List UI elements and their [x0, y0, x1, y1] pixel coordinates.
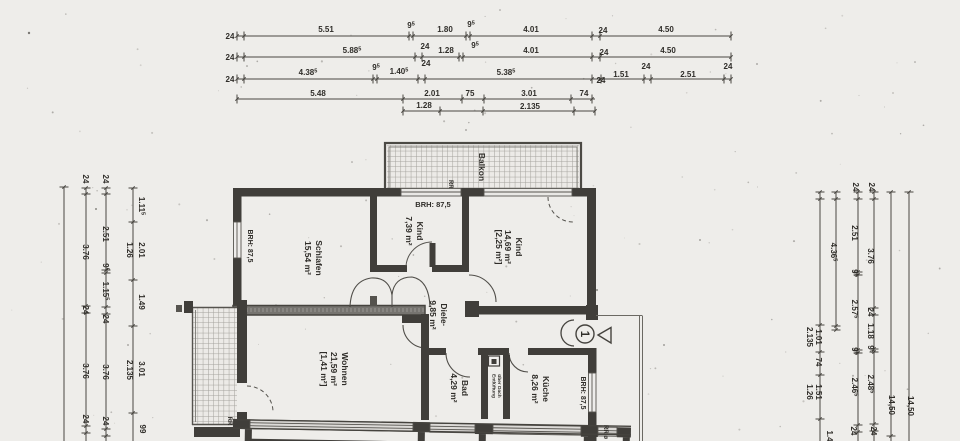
svg-text:9,85 m²: 9,85 m² — [428, 300, 438, 329]
svg-text:Kind: Kind — [415, 222, 425, 241]
svg-text:3.76: 3.76 — [81, 363, 90, 379]
svg-text:24: 24 — [600, 48, 609, 57]
svg-text:Wohnen: Wohnen — [340, 352, 350, 385]
svg-text:2.135: 2.135 — [125, 360, 134, 381]
svg-text:3.76: 3.76 — [81, 244, 90, 260]
svg-text:BRH: 87,5: BRH: 87,5 — [415, 200, 450, 209]
svg-text:5.48: 5.48 — [310, 89, 326, 98]
svg-text:4.01: 4.01 — [523, 46, 539, 55]
svg-text:24: 24 — [869, 427, 878, 436]
svg-text:4,29 m²: 4,29 m² — [449, 373, 459, 402]
svg-text:24: 24 — [101, 175, 110, 184]
svg-text:8,26 m²: 8,26 m² — [530, 374, 540, 403]
svg-text:[1,41 m²]: [1,41 m²] — [319, 352, 329, 387]
svg-text:75: 75 — [466, 89, 475, 98]
svg-text:RR ø: RR ø — [602, 425, 608, 439]
svg-text:24: 24 — [599, 26, 608, 35]
svg-text:über Dach: über Dach — [496, 374, 502, 398]
svg-text:24: 24 — [226, 53, 235, 62]
svg-text:1: 1 — [578, 331, 590, 338]
svg-text:24: 24 — [226, 75, 235, 84]
svg-text:21,59 m²: 21,59 m² — [329, 352, 339, 386]
svg-text:RR: RR — [226, 417, 232, 426]
svg-text:1.49: 1.49 — [137, 294, 146, 310]
svg-text:99: 99 — [138, 425, 147, 434]
svg-text:14,50: 14,50 — [887, 395, 896, 416]
svg-text:24: 24 — [866, 308, 875, 317]
svg-text:2.01: 2.01 — [137, 242, 146, 258]
svg-text:4.50: 4.50 — [660, 46, 676, 55]
svg-text:1.28: 1.28 — [416, 101, 432, 110]
svg-text:2.51: 2.51 — [680, 70, 696, 79]
svg-text:3.76: 3.76 — [101, 364, 110, 380]
svg-text:Küche: Küche — [541, 376, 551, 402]
svg-text:74: 74 — [814, 358, 823, 367]
svg-text:3.01: 3.01 — [137, 361, 146, 377]
svg-text:3.01: 3.01 — [521, 89, 537, 98]
svg-text:2.51: 2.51 — [850, 225, 859, 241]
svg-text:Kind: Kind — [514, 238, 524, 257]
svg-text:74: 74 — [580, 89, 589, 98]
svg-text:2.51: 2.51 — [101, 226, 110, 242]
svg-text:5.51: 5.51 — [318, 25, 334, 34]
svg-text:Bad: Bad — [460, 380, 470, 396]
svg-text:1.26: 1.26 — [125, 242, 134, 258]
svg-text:24: 24 — [101, 417, 110, 426]
svg-text:3.76: 3.76 — [866, 248, 875, 264]
svg-text:24: 24 — [851, 183, 860, 192]
svg-text:Entlüftung: Entlüftung — [491, 374, 497, 398]
svg-text:24: 24 — [81, 415, 90, 424]
svg-text:[2,25 m²]: [2,25 m²] — [494, 230, 504, 265]
svg-text:24: 24 — [421, 42, 430, 51]
svg-text:1.01: 1.01 — [814, 329, 823, 345]
svg-text:1.26: 1.26 — [805, 384, 814, 400]
svg-text:24: 24 — [101, 315, 110, 324]
svg-text:Schlafen: Schlafen — [314, 240, 324, 275]
svg-text:2.01: 2.01 — [424, 89, 440, 98]
svg-text:15,54 m²: 15,54 m² — [303, 241, 313, 275]
svg-text:24: 24 — [849, 427, 858, 436]
svg-text:24: 24 — [867, 183, 876, 192]
svg-text:4.01: 4.01 — [523, 25, 539, 34]
svg-text:24: 24 — [642, 62, 651, 71]
svg-text:1.51: 1.51 — [814, 384, 823, 400]
svg-text:7,39 m²: 7,39 m² — [404, 216, 414, 245]
svg-text:24: 24 — [724, 62, 733, 71]
svg-text:Balkon: Balkon — [477, 153, 487, 181]
svg-text:2.135: 2.135 — [805, 327, 814, 348]
svg-text:24: 24 — [81, 306, 90, 315]
svg-text:24: 24 — [81, 175, 90, 184]
svg-text:24: 24 — [422, 59, 431, 68]
svg-text:1.4: 1.4 — [825, 430, 834, 441]
svg-text:14,50: 14,50 — [906, 396, 915, 417]
svg-text:1.80: 1.80 — [437, 25, 453, 34]
svg-text:Diele·: Diele· — [439, 303, 449, 326]
svg-text:1.18: 1.18 — [866, 323, 875, 339]
svg-text:4.50: 4.50 — [658, 25, 674, 34]
svg-text:BRH: 87,5: BRH: 87,5 — [246, 229, 253, 262]
svg-text:1.28: 1.28 — [438, 46, 454, 55]
svg-text:24: 24 — [226, 32, 235, 41]
svg-text:1.51: 1.51 — [613, 70, 629, 79]
svg-text:2.135: 2.135 — [520, 102, 541, 111]
svg-text:BRH: 87,5: BRH: 87,5 — [579, 376, 586, 409]
svg-text:24: 24 — [597, 76, 606, 85]
